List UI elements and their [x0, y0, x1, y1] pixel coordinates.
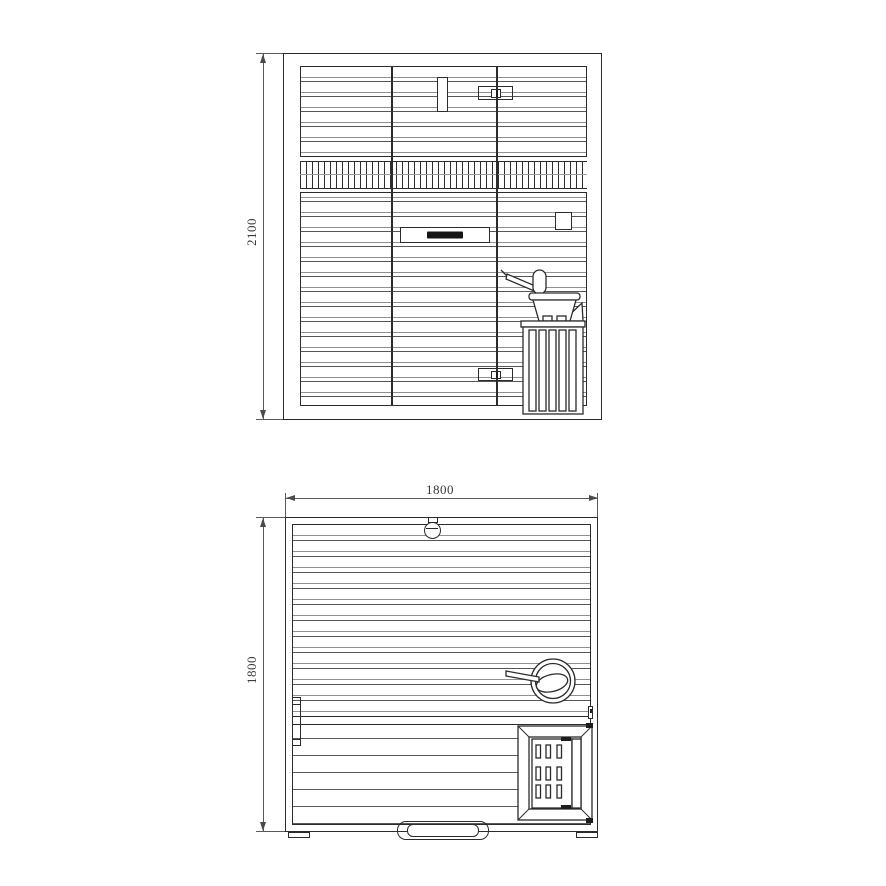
heater-top-plate — [521, 321, 585, 327]
control-box — [555, 212, 572, 230]
heater-corner-mark — [586, 723, 593, 728]
plan-extension-line-left-lower — [256, 831, 285, 832]
bucket-foot-right-icon — [557, 316, 566, 321]
heater-slat — [559, 330, 566, 411]
top-vent-slider-knob — [491, 89, 501, 98]
ladle-cup-icon — [533, 270, 546, 294]
dimension-arrow-down-icon — [260, 410, 266, 419]
heater-slat — [569, 330, 576, 411]
knob-line-icon — [496, 90, 498, 97]
vent-grille — [300, 156, 587, 193]
bucket-rim-icon — [529, 293, 580, 300]
heater-side-bar — [572, 739, 581, 808]
dimension-arrow-down-icon — [260, 822, 266, 831]
hinge-pin-line — [293, 704, 300, 705]
dimension-arrow-right-icon — [589, 495, 598, 501]
technical-drawing-canvas: 2100 — [0, 0, 886, 886]
heater-clip-top — [561, 737, 571, 741]
bottom-vent-slider-knob — [491, 371, 501, 379]
front-height-dimension-label: 2100 — [245, 218, 258, 246]
ladle-fork-icon — [501, 270, 507, 276]
heater-slat — [549, 330, 556, 411]
heater-vent-slots — [536, 745, 562, 798]
ceiling-light-icon — [424, 522, 441, 539]
door-hinge — [292, 697, 301, 746]
panel-divider-left — [391, 66, 393, 406]
plan-width-dimension-line — [285, 498, 598, 499]
ceiling-light-chord — [426, 528, 438, 529]
plan-depth-dimension-line — [263, 517, 264, 832]
plan-width-dimension-label: 1800 — [426, 483, 454, 496]
bucket-body-icon — [533, 300, 576, 321]
hinge-pin-line — [293, 739, 300, 740]
plan-depth-dimension-label: 1800 — [245, 656, 258, 684]
heater-slat — [529, 330, 536, 411]
cabin-foot-left — [288, 832, 310, 838]
panel-divider-right — [496, 66, 498, 406]
front-extension-line-bottom — [256, 419, 284, 420]
brand-logo-plate — [400, 227, 490, 243]
bucket-top-group — [505, 652, 583, 710]
bucket-heater-group — [500, 258, 595, 418]
door-handle-grip — [407, 824, 479, 837]
heater-slat — [539, 330, 546, 411]
door-closer — [437, 77, 448, 112]
heater-corner-mark — [586, 818, 593, 823]
dimension-arrow-left-icon — [286, 495, 295, 501]
heater-clip-bottom — [561, 805, 571, 809]
knob-line-icon — [496, 372, 498, 378]
latch-pin — [590, 709, 592, 713]
heater-top-group — [512, 718, 602, 828]
bucket-foot-left-icon — [543, 316, 552, 321]
brand-logo-icon — [427, 232, 463, 239]
vent-grille-slats-icon — [300, 161, 587, 189]
dimension-arrow-up-icon — [260, 518, 266, 527]
front-height-dimension-line — [263, 53, 264, 420]
dimension-arrow-up-icon — [260, 54, 266, 63]
cabin-foot-right — [576, 832, 598, 838]
